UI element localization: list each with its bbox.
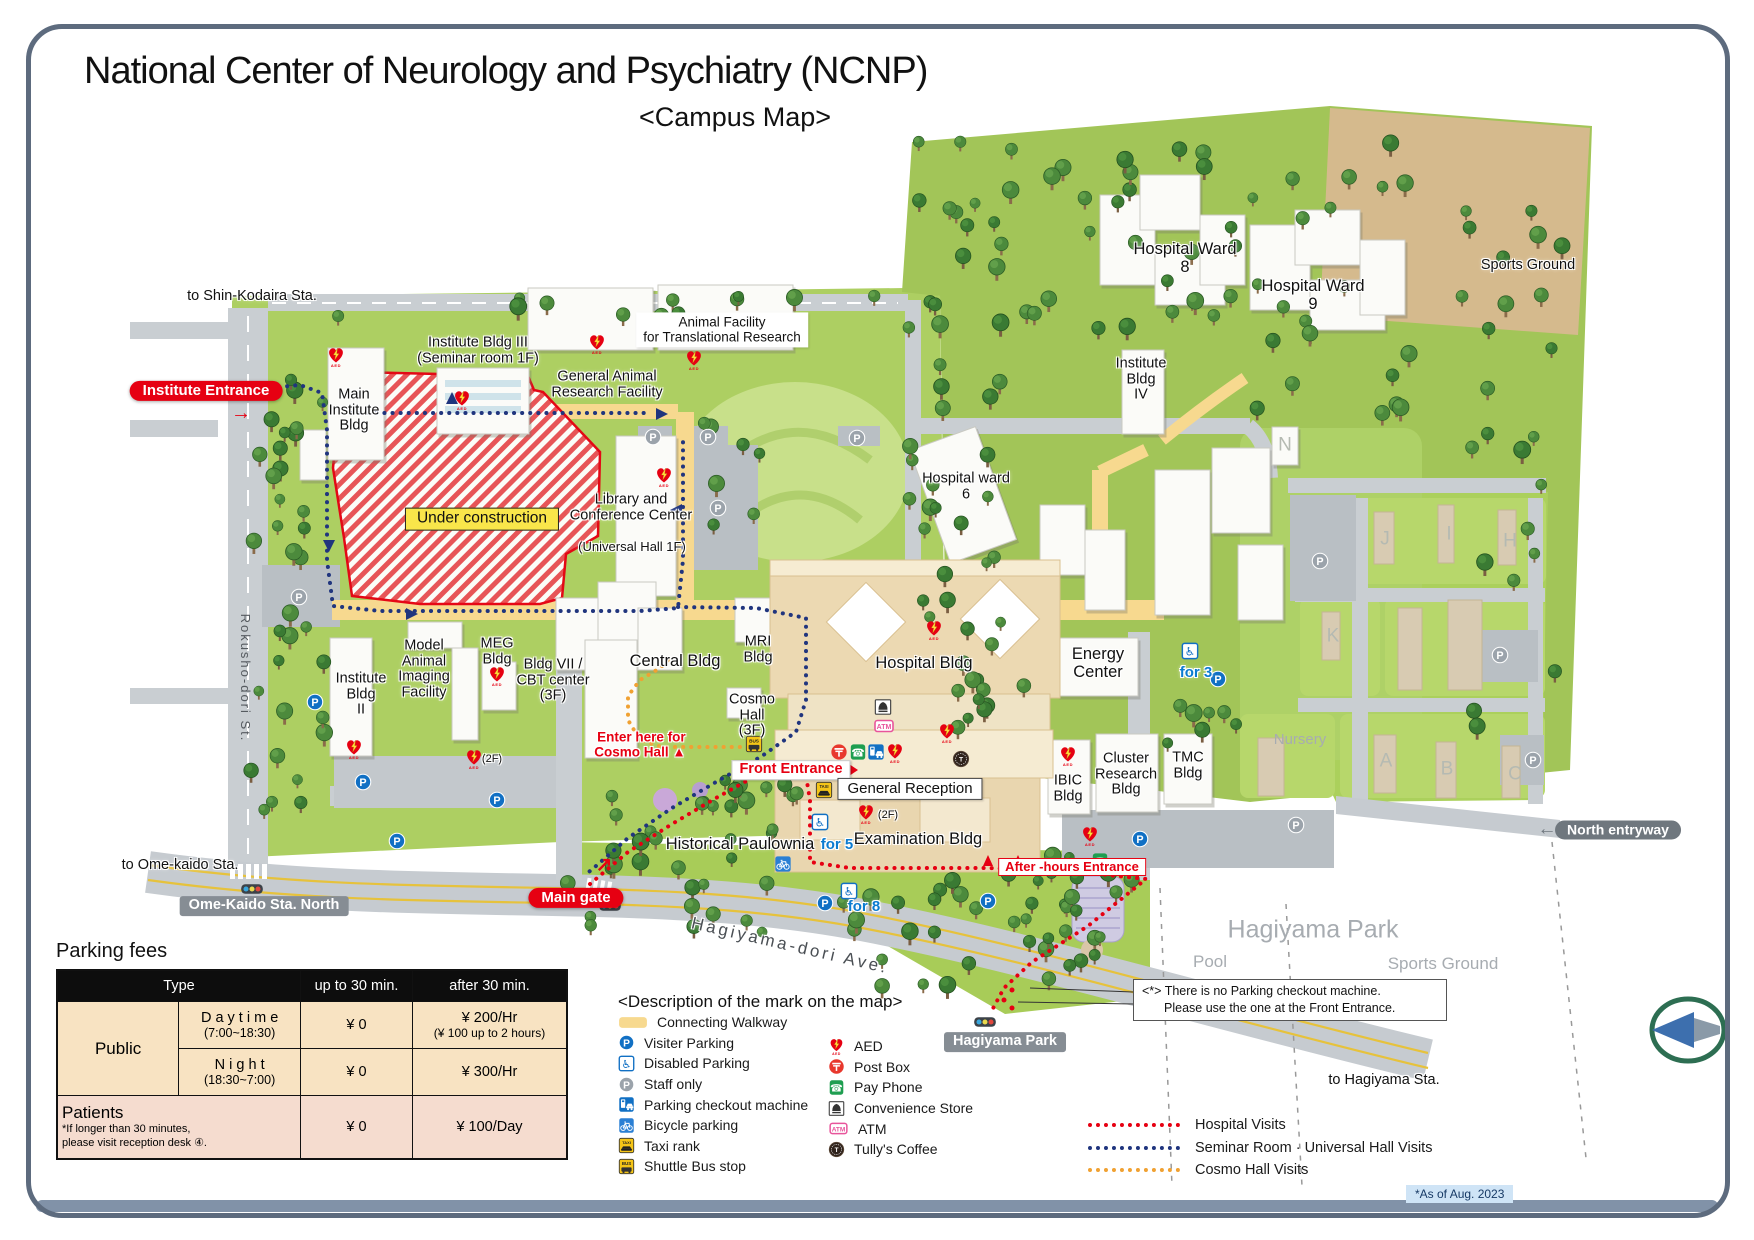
tree-icon [757,927,767,941]
daytime-upto: ¥ 0 [301,1002,413,1049]
compass-icon [1652,999,1724,1061]
disabled-icon [1182,643,1197,658]
pgray-icon [618,1076,635,1093]
legend-item-left-1: Visiter Parking [618,1033,808,1054]
store-icon [875,700,890,714]
table-header-row: Type up to 30 min. after 30 min. [57,970,567,1002]
patients-after: ¥ 100/Day [413,1096,568,1160]
pgray-icon [700,429,715,444]
payphone-icon [1093,853,1107,868]
col-upto: up to 30 min. [301,970,413,1002]
tree-icon [687,919,701,938]
tullys-icon [828,1141,845,1158]
pblue-icon [980,893,995,908]
parking-checkout-note: <*> There is no Parking checkout machine… [1133,979,1447,1021]
parking-fees-panel: Parking fees Type up to 30 min. after 30… [56,940,556,1160]
route-legend-item-0: Hospital Visits [1088,1114,1432,1137]
legend-item-label: Convenience Store [854,1100,973,1116]
public-label: Public [57,1002,179,1096]
legend-item-label: Disabled Parking [644,1055,750,1071]
pgray-icon [1288,817,1303,832]
pblue-icon [489,792,504,807]
pgray-icon [1525,752,1540,767]
legend-item-label: Staff only [644,1076,702,1092]
legend-item-label: Bicycle parking [644,1117,738,1133]
legend-item-right-4: ATM [828,1118,973,1139]
tree-icon [706,907,720,926]
col-after: after 30 min. [413,970,568,1002]
legend-item-left-5: Bicycle parking [618,1115,808,1136]
daytime-after: ¥ 200/Hr(¥ 100 up to 2 hours) [413,1002,568,1049]
bus-icon [618,1158,635,1175]
night-upto: ¥ 0 [301,1049,413,1096]
legend-item-right-2: Pay Phone [828,1077,973,1098]
page-subtitle: <Campus Map> [560,102,910,133]
legend-item-label: ATM [858,1121,887,1137]
parking-fees-title: Parking fees [56,940,556,963]
night-after: ¥ 300/Hr [413,1049,568,1096]
table-row: Public D a y t i m e(7:00~18:30) ¥ 0 ¥ 2… [57,1002,567,1049]
pblue-icon [817,895,832,910]
walkway-icon [618,1016,648,1029]
legend-left-column: Connecting WalkwayVisiter ParkingDisable… [618,1012,808,1177]
disabled-icon [812,814,827,829]
night-cell: N i g h t(18:30~7:00) [179,1049,301,1096]
legend-item-label: Visiter Parking [644,1035,734,1051]
route-dotted-line [1088,1123,1180,1127]
legend-item-label: Tully's Coffee [854,1141,938,1157]
legend-item-label: Post Box [854,1059,910,1075]
pgray-icon [291,589,306,604]
page-title: National Center of Neurology and Psychia… [84,50,927,93]
legend-item-left-6: Taxi rank [618,1136,808,1157]
tullys-icon [953,751,968,766]
route-legend-label: Seminar Room · Universal Hall Visits [1195,1140,1432,1156]
route-legend-label: Hospital Visits [1195,1117,1286,1133]
legend-heading: <Description of the mark on the map> [618,992,902,1012]
checkout-icon [618,1096,635,1113]
signal-icon [599,901,621,911]
table-row: Patients*If longer than 30 minutes,pleas… [57,1096,567,1160]
bicycle-icon [775,856,790,871]
atm-icon [828,1122,849,1135]
route-legend-label: Cosmo Hall Visits [1195,1162,1308,1178]
signal-icon [974,1017,996,1027]
legend-item-label: Pay Phone [854,1079,923,1095]
legend-item-label: Shuttle Bus stop [644,1158,746,1174]
bicycle-icon [618,1117,635,1134]
bus-icon [746,736,761,751]
legend-item-left-3: Staff only [618,1074,808,1095]
routes-legend: Hospital VisitsSeminar Room · Universal … [1088,1114,1432,1182]
aed-icon [828,1037,845,1056]
pblue-icon [618,1034,635,1051]
pblue-icon [355,774,370,789]
col-type: Type [57,970,301,1002]
postbox-icon [831,744,846,759]
route-dotted-line [1088,1168,1180,1172]
legend-item-right-1: Post Box [828,1057,973,1078]
disabled-icon [841,883,856,898]
pblue-icon [389,833,404,848]
signal-icon [241,884,263,894]
legend-item-label: Parking checkout machine [644,1097,808,1113]
tree-icon [877,954,888,969]
pgray-icon [1312,553,1327,568]
atm-icon [875,721,893,732]
payphone-icon [851,744,865,759]
legend-item-right-5: Tully's Coffee [828,1139,973,1160]
pgray-icon [849,430,864,445]
tree-icon [741,915,753,931]
payphone-icon [828,1079,845,1096]
taxi-icon [816,782,831,797]
checkout-icon [868,744,883,759]
campus-map-page: P P ♿ AED ☎ ATM T BUS TAXI [0,0,1754,1240]
legend-right-column: AEDPost BoxPay PhoneConvenience StoreATM… [828,1036,973,1160]
route-legend-item-2: Cosmo Hall Visits [1088,1159,1432,1182]
patients-cell: Patients*If longer than 30 minutes,pleas… [57,1096,301,1160]
legend-item-left-7: Shuttle Bus stop [618,1156,808,1177]
as-of-date: *As of Aug. 2023 [1406,1185,1513,1203]
pgray-icon [645,429,660,444]
tree-icon [918,979,929,993]
pblue-icon [1210,671,1225,686]
legend-item-label: Taxi rank [644,1138,700,1154]
pblue-icon [307,694,322,709]
store-icon [828,1100,845,1117]
legend-item-label: AED [854,1038,883,1054]
legend-item-label: Connecting Walkway [657,1014,787,1030]
legend-item-left-2: Disabled Parking [618,1053,808,1074]
pgray-icon [1492,647,1507,662]
parking-fees-table: Type up to 30 min. after 30 min. Public … [56,969,568,1160]
pgray-icon [710,500,725,515]
route-dotted-line [1088,1146,1180,1150]
disabled-icon [618,1055,635,1072]
tree-icon [939,976,956,999]
daytime-cell: D a y t i m e(7:00~18:30) [179,1002,301,1049]
route-legend-item-1: Seminar Room · Universal Hall Visits [1088,1137,1432,1160]
legend-item-right-0: AED [828,1036,973,1057]
pblue-icon [1132,831,1147,846]
legend-item-left-4: Parking checkout machine [618,1094,808,1115]
legend-item-right-3: Convenience Store [828,1098,973,1119]
patients-upto: ¥ 0 [301,1096,413,1160]
postbox-icon [828,1058,845,1075]
taxi-icon [618,1137,635,1154]
tree-icon [585,919,597,935]
legend-item-left-0: Connecting Walkway [618,1012,808,1033]
